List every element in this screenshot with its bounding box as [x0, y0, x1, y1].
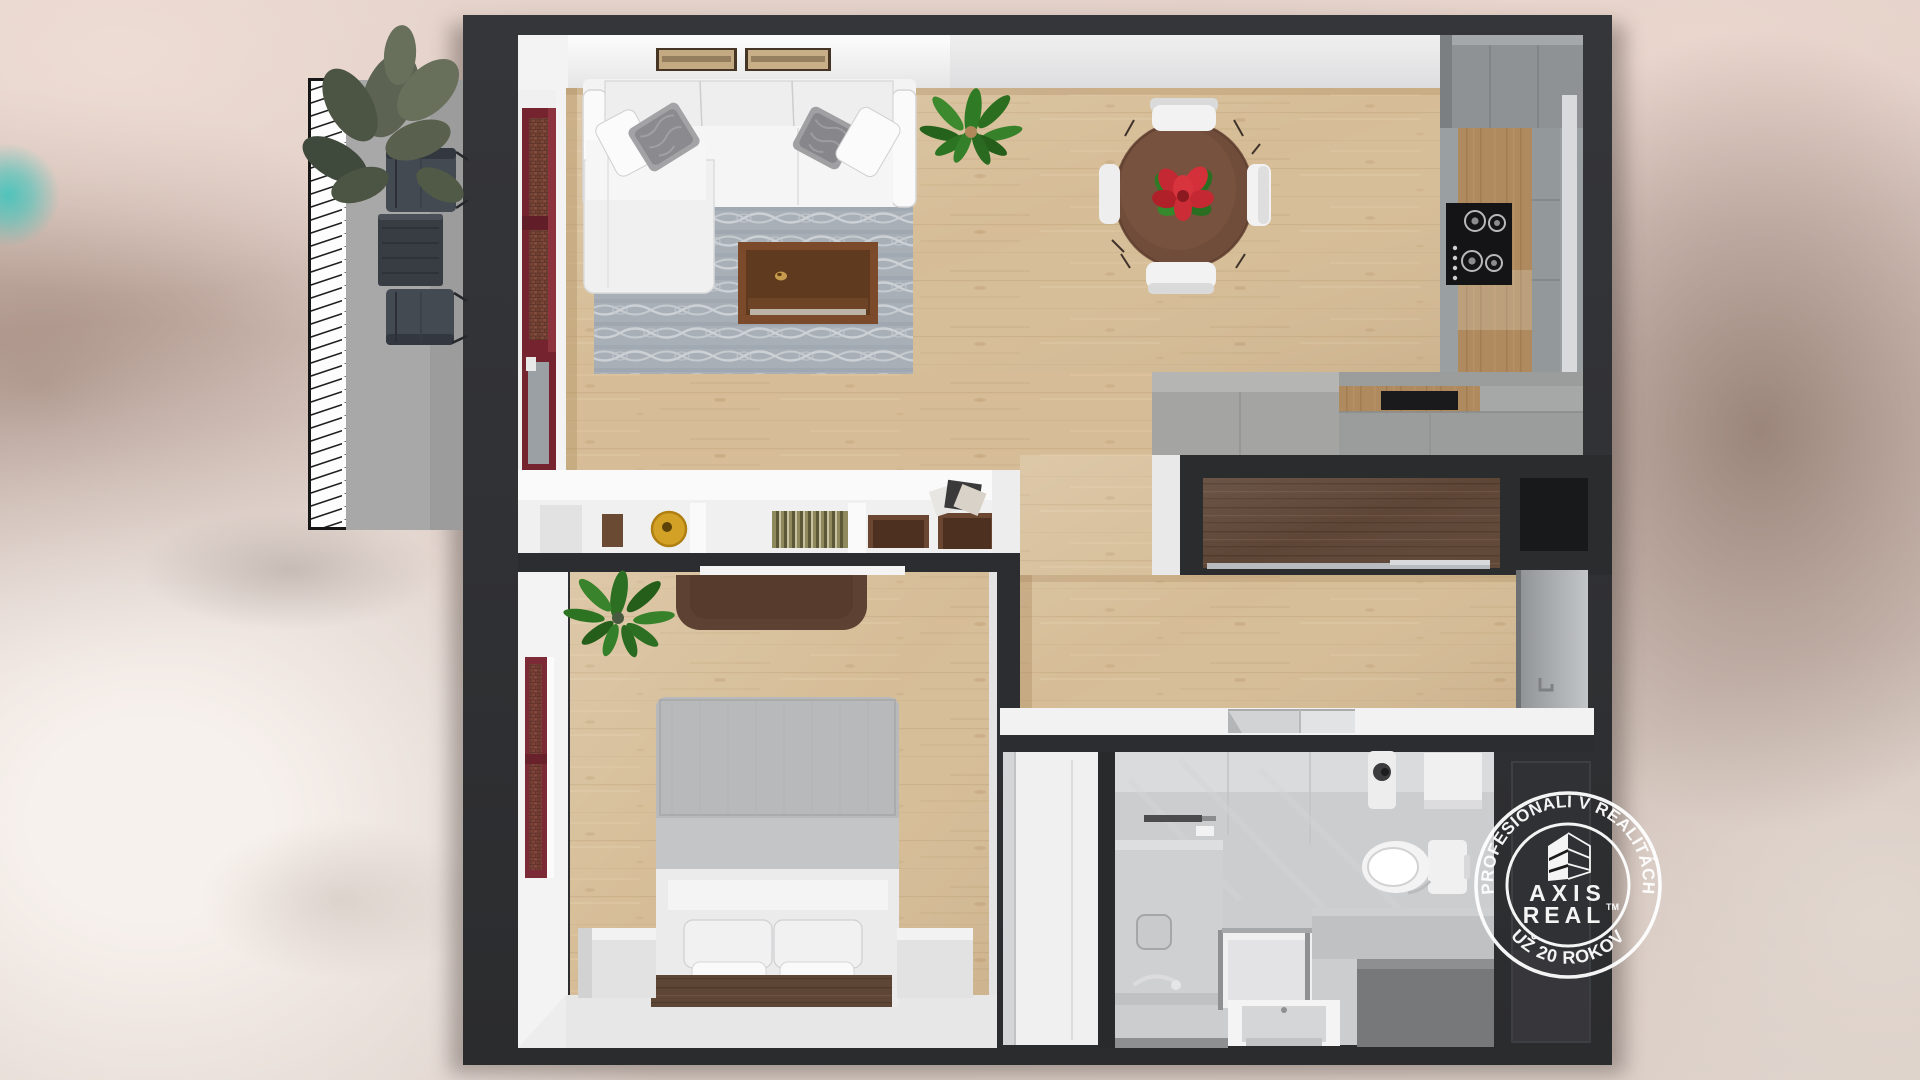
svg-text:TM: TM — [1606, 902, 1619, 912]
svg-text:REAL: REAL — [1523, 902, 1606, 928]
